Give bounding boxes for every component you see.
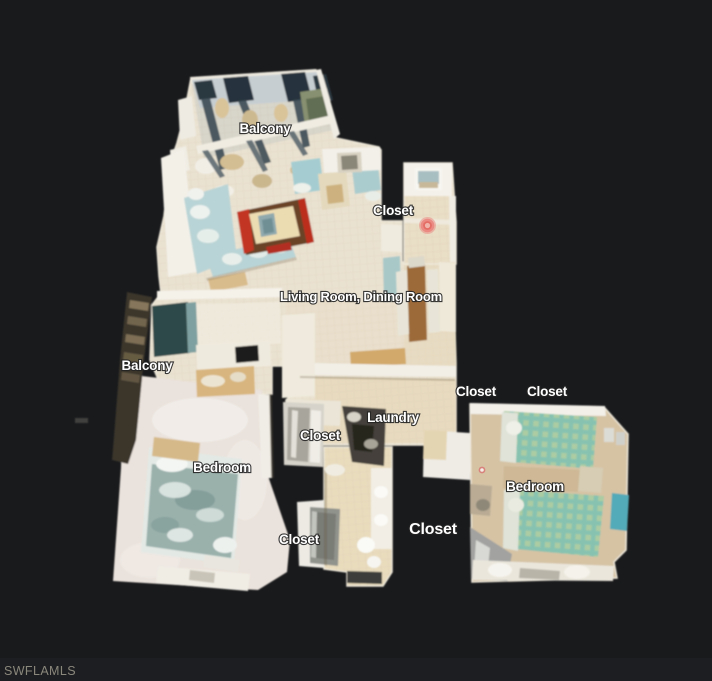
svg-text:SWFLAMLS: SWFLAMLS [4,664,76,678]
svg-text:Bedroom: Bedroom [506,479,564,494]
svg-text:Closet: Closet [300,428,341,443]
svg-text:Balcony: Balcony [121,358,173,373]
svg-text:Closet: Closet [373,203,414,218]
svg-text:Balcony: Balcony [239,121,291,136]
svg-text:Bedroom: Bedroom [193,460,251,475]
svg-text:Closet: Closet [279,532,320,547]
svg-text:Closet: Closet [409,521,458,538]
svg-text:Living Room, Dining Room: Living Room, Dining Room [280,289,442,304]
svg-text:Closet: Closet [527,384,568,399]
svg-text:Laundry: Laundry [367,410,420,425]
svg-text:Closet: Closet [456,384,497,399]
